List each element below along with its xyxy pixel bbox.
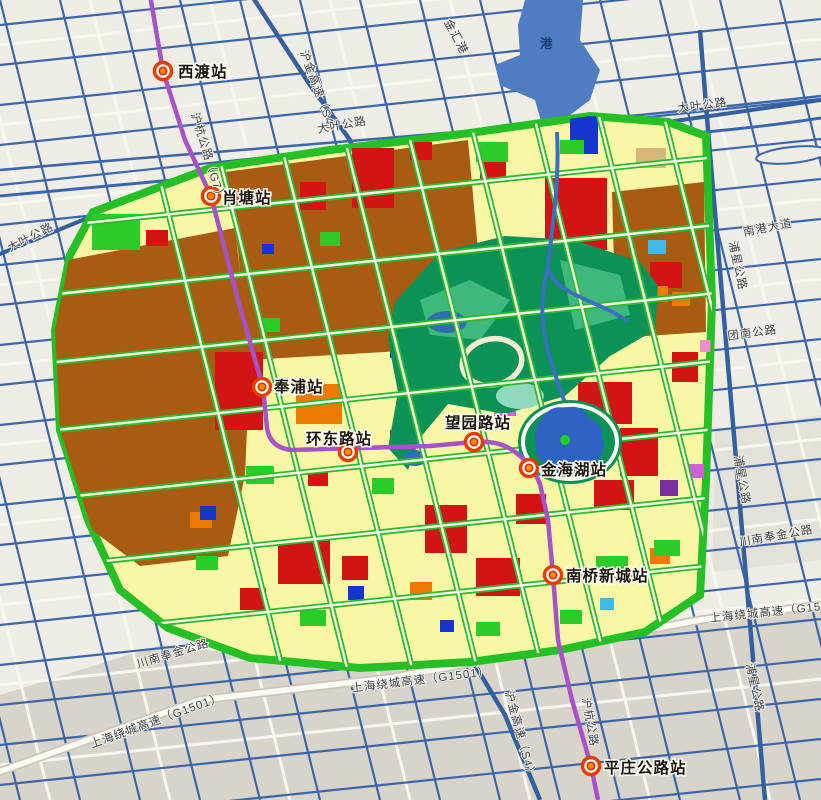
map-canvas[interactable]: 西渡站 肖塘站 奉浦站 环东路站 望园路站 金海湖站 南桥新城站 平庄公路站 沪… xyxy=(0,0,821,800)
lake-island xyxy=(560,435,570,445)
station-label-huandonglu: 环东路站 xyxy=(306,429,372,448)
station-marker-pingzhuanggonglu[interactable] xyxy=(583,758,600,775)
station-label-xiaotang: 肖塘站 xyxy=(222,188,272,207)
station-marker-jinhaihu[interactable] xyxy=(521,460,538,477)
cyan-block-2 xyxy=(600,598,614,610)
station-label-xidu: 西渡站 xyxy=(178,62,228,81)
station-marker-nanqiaoxincheng[interactable] xyxy=(545,567,562,584)
station-label-pingzhuanggonglu: 平庄公路站 xyxy=(604,758,687,777)
station-label-fengpu: 奉浦站 xyxy=(273,377,324,396)
station-marker-fengpu[interactable] xyxy=(254,379,271,396)
station-label-wangyuanlu: 望园路站 xyxy=(445,413,511,432)
station-label-nanqiaoxincheng: 南桥新城站 xyxy=(566,566,649,585)
station-marker-xidu[interactable] xyxy=(155,63,172,80)
cyan-block-1 xyxy=(648,240,666,254)
station-label-jinhaihu: 金海湖站 xyxy=(540,460,607,479)
station-marker-wangyuanlu[interactable] xyxy=(466,434,483,451)
planning-map: 西渡站 肖塘站 奉浦站 环东路站 望园路站 金海湖站 南桥新城站 平庄公路站 沪… xyxy=(0,0,821,800)
water-label-harbor: 港 xyxy=(540,36,554,51)
purple-block xyxy=(660,480,678,496)
